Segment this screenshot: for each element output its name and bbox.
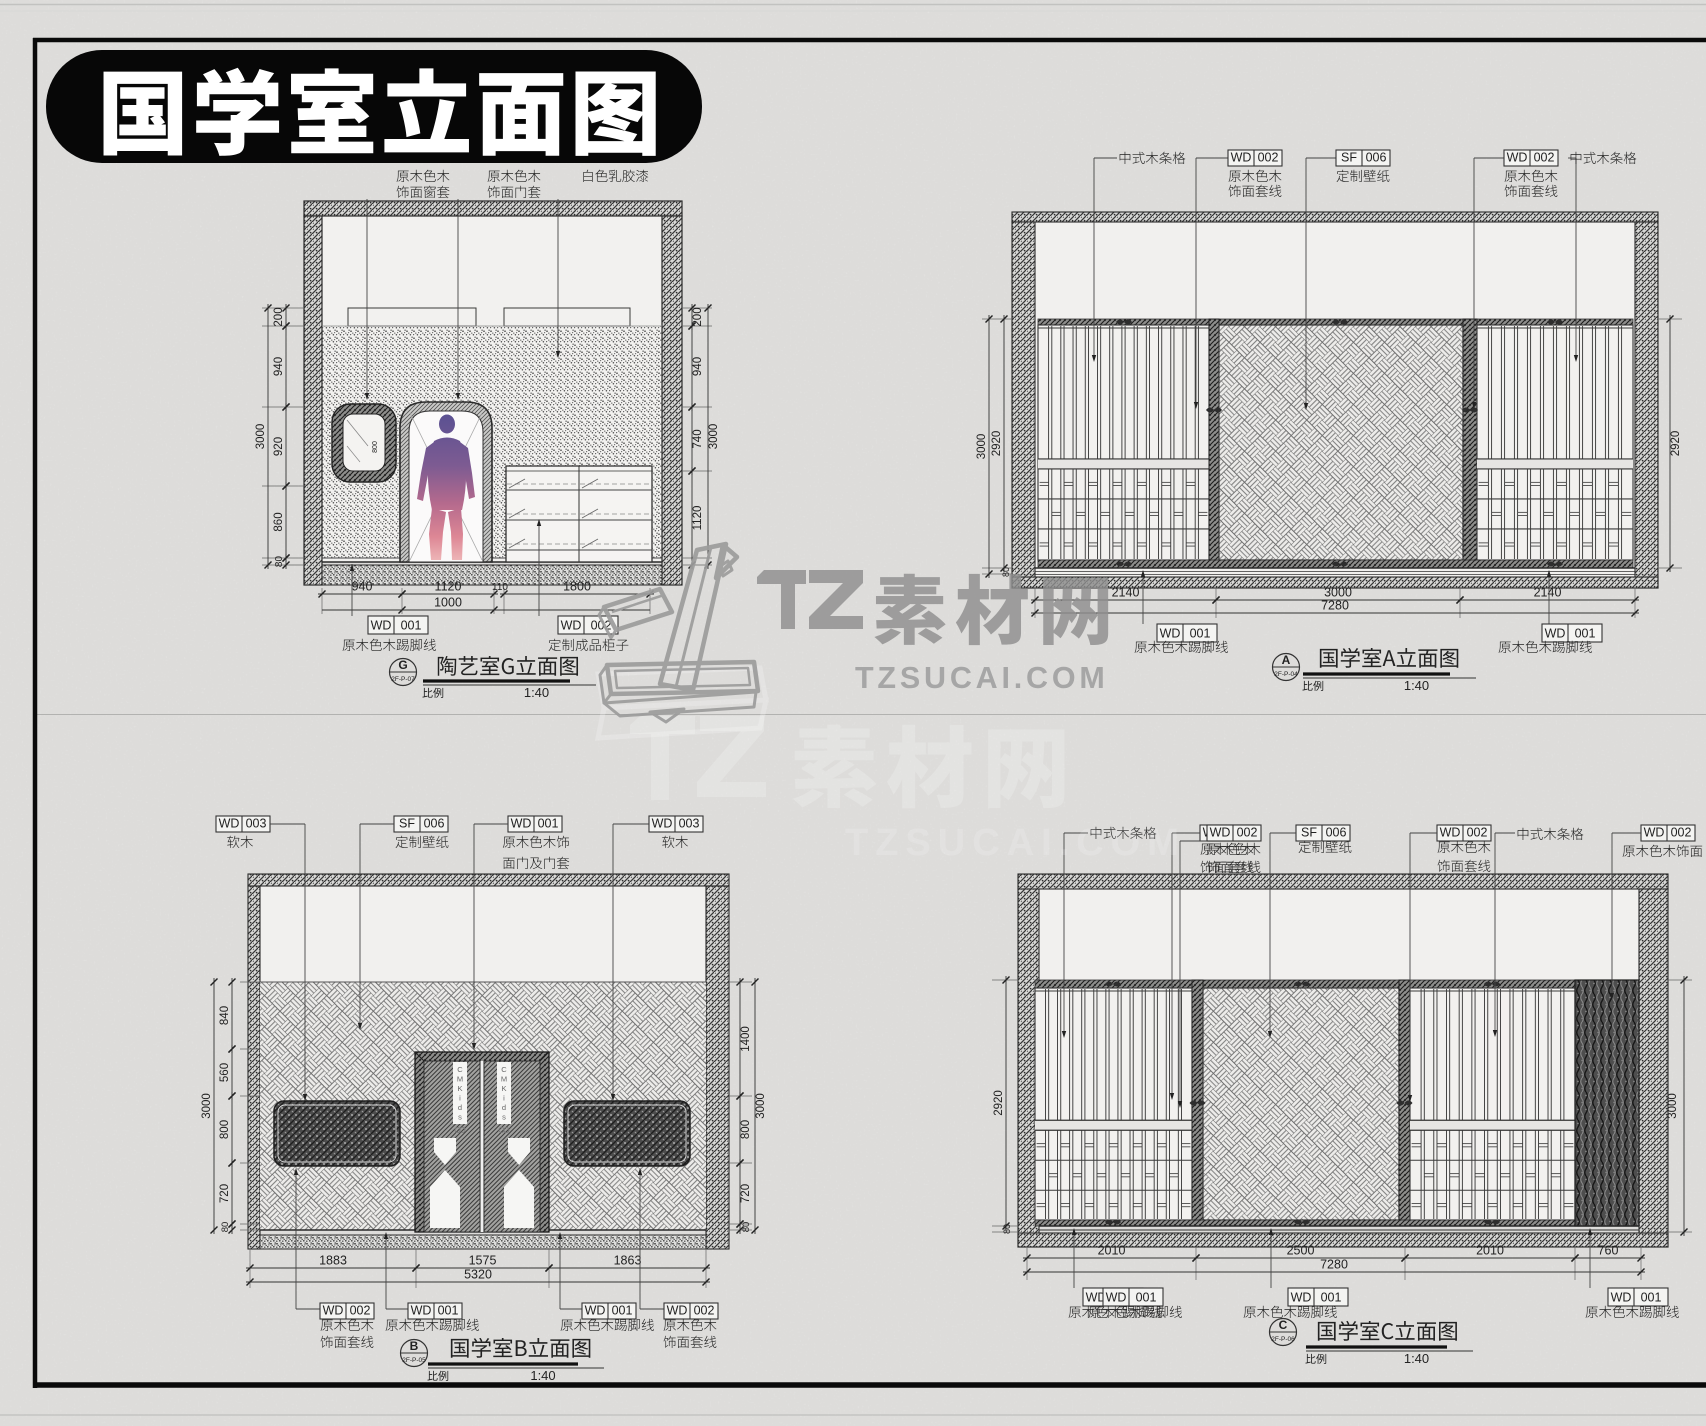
svg-text:3000: 3000 xyxy=(1324,586,1352,600)
svg-text:WD: WD xyxy=(1644,826,1665,840)
svg-text:860: 860 xyxy=(273,512,285,531)
svg-text:1:40: 1:40 xyxy=(530,1368,555,1383)
svg-text:d: d xyxy=(458,1103,462,1112)
svg-text:2F-P-07: 2F-P-07 xyxy=(391,676,415,683)
svg-text:002: 002 xyxy=(1671,826,1692,840)
svg-text:1863: 1863 xyxy=(614,1254,642,1268)
svg-text:002: 002 xyxy=(1258,151,1279,165)
svg-text:80: 80 xyxy=(274,556,285,568)
svg-text:800: 800 xyxy=(740,1120,752,1139)
svg-text:1:40: 1:40 xyxy=(1404,1351,1429,1366)
svg-text:TZSUCAI.COM: TZSUCAI.COM xyxy=(845,822,1186,864)
svg-text:80: 80 xyxy=(220,1222,231,1233)
svg-text:WD: WD xyxy=(1611,1291,1632,1305)
svg-text:C: C xyxy=(501,1065,507,1074)
svg-text:2920: 2920 xyxy=(991,431,1003,457)
svg-text:WD: WD xyxy=(1507,151,1528,165)
svg-text:1:40: 1:40 xyxy=(524,685,549,700)
svg-text:WD: WD xyxy=(1231,151,1252,165)
svg-text:800: 800 xyxy=(219,1120,231,1139)
svg-text:WD: WD xyxy=(561,619,582,633)
svg-text:3000: 3000 xyxy=(201,1093,213,1119)
svg-text:006: 006 xyxy=(1366,151,1387,165)
svg-text:1120: 1120 xyxy=(692,506,704,531)
svg-text:720: 720 xyxy=(219,1184,231,1203)
svg-text:WD: WD xyxy=(511,817,532,831)
svg-text:001: 001 xyxy=(1321,1291,1342,1305)
svg-text:1800: 1800 xyxy=(563,580,591,594)
svg-text:WD: WD xyxy=(1106,1291,1127,1305)
svg-text:740: 740 xyxy=(692,429,704,448)
svg-text:006: 006 xyxy=(1326,826,1347,840)
svg-text:1883: 1883 xyxy=(319,1254,347,1268)
svg-text:2F-P-04: 2F-P-04 xyxy=(1274,671,1298,678)
svg-text:WD: WD xyxy=(323,1304,344,1318)
svg-text:M: M xyxy=(501,1075,507,1084)
svg-text:940: 940 xyxy=(692,357,704,376)
svg-text:SF: SF xyxy=(399,817,415,831)
svg-text:7280: 7280 xyxy=(1321,599,1349,613)
svg-text:3000: 3000 xyxy=(976,434,988,460)
svg-text:2920: 2920 xyxy=(1670,431,1682,457)
svg-text:800: 800 xyxy=(372,441,379,453)
svg-text:WD: WD xyxy=(411,1304,432,1318)
svg-text:940: 940 xyxy=(352,580,373,594)
svg-text:3000: 3000 xyxy=(755,1093,767,1119)
svg-text:2140: 2140 xyxy=(1534,586,1562,600)
svg-text:WD: WD xyxy=(1160,627,1181,641)
svg-text:001: 001 xyxy=(1575,627,1596,641)
svg-text:WD: WD xyxy=(667,1304,688,1318)
svg-text:s: s xyxy=(502,1113,506,1122)
svg-text:720: 720 xyxy=(740,1184,752,1203)
svg-text:003: 003 xyxy=(679,817,700,831)
svg-text:G: G xyxy=(398,658,407,672)
svg-text:C: C xyxy=(1279,1318,1288,1332)
svg-text:001: 001 xyxy=(1136,1291,1157,1305)
svg-text:001: 001 xyxy=(1190,627,1211,641)
svg-text:7280: 7280 xyxy=(1320,1258,1348,1272)
svg-text:2010: 2010 xyxy=(1098,1244,1126,1258)
svg-text:1:40: 1:40 xyxy=(1404,678,1429,693)
svg-text:2F-P-06: 2F-P-06 xyxy=(1271,1336,1295,1343)
svg-text:K: K xyxy=(457,1084,462,1093)
svg-text:001: 001 xyxy=(538,817,559,831)
svg-text:001: 001 xyxy=(612,1304,633,1318)
svg-text:3000: 3000 xyxy=(708,424,720,450)
svg-text:B: B xyxy=(410,1339,419,1353)
svg-text:TZSUCAI.COM: TZSUCAI.COM xyxy=(855,661,1109,695)
svg-text:WD: WD xyxy=(1545,627,1566,641)
svg-text:001: 001 xyxy=(438,1304,459,1318)
svg-text:80: 80 xyxy=(741,1222,752,1233)
svg-text:WD: WD xyxy=(1291,1291,1312,1305)
svg-text:5320: 5320 xyxy=(464,1268,492,1282)
svg-text:2920: 2920 xyxy=(993,1090,1005,1116)
svg-text:840: 840 xyxy=(219,1006,231,1025)
svg-text:C: C xyxy=(457,1065,463,1074)
svg-text:SF: SF xyxy=(1301,826,1317,840)
svg-text:WD: WD xyxy=(1210,826,1231,840)
svg-text:s: s xyxy=(458,1113,462,1122)
svg-text:006: 006 xyxy=(424,817,445,831)
svg-text:920: 920 xyxy=(273,437,285,456)
svg-text:760: 760 xyxy=(1598,1244,1619,1258)
svg-text:1000: 1000 xyxy=(434,596,462,610)
svg-text:1120: 1120 xyxy=(435,580,462,594)
svg-text:80: 80 xyxy=(1002,1224,1012,1234)
svg-text:002: 002 xyxy=(1467,826,1488,840)
svg-text:560: 560 xyxy=(219,1063,231,1082)
svg-text:002: 002 xyxy=(350,1304,371,1318)
svg-text:3000: 3000 xyxy=(1667,1093,1679,1119)
svg-text:K: K xyxy=(501,1084,506,1093)
svg-text:WD: WD xyxy=(585,1304,606,1318)
svg-text:WD: WD xyxy=(371,619,392,633)
svg-text:2010: 2010 xyxy=(1476,1244,1504,1258)
svg-text:001: 001 xyxy=(401,619,422,633)
svg-text:WD: WD xyxy=(1440,826,1461,840)
svg-text:2140: 2140 xyxy=(1112,586,1140,600)
svg-text:002: 002 xyxy=(694,1304,715,1318)
svg-text:940: 940 xyxy=(273,357,285,376)
svg-text:WD: WD xyxy=(652,817,673,831)
svg-text:M: M xyxy=(457,1075,463,1084)
svg-text:001: 001 xyxy=(1641,1291,1662,1305)
svg-text:2F-P-05: 2F-P-05 xyxy=(402,1357,426,1364)
svg-text:003: 003 xyxy=(246,817,267,831)
svg-text:002: 002 xyxy=(1237,826,1258,840)
svg-text:d: d xyxy=(502,1103,506,1112)
svg-text:3000: 3000 xyxy=(255,424,267,450)
svg-text:2500: 2500 xyxy=(1287,1244,1315,1258)
svg-text:1575: 1575 xyxy=(469,1254,497,1268)
svg-text:SF: SF xyxy=(1341,151,1357,165)
svg-text:200: 200 xyxy=(273,307,285,326)
svg-text:WD: WD xyxy=(219,817,240,831)
svg-text:A: A xyxy=(1282,653,1291,667)
svg-text:1400: 1400 xyxy=(740,1026,752,1052)
svg-text:002: 002 xyxy=(1534,151,1555,165)
